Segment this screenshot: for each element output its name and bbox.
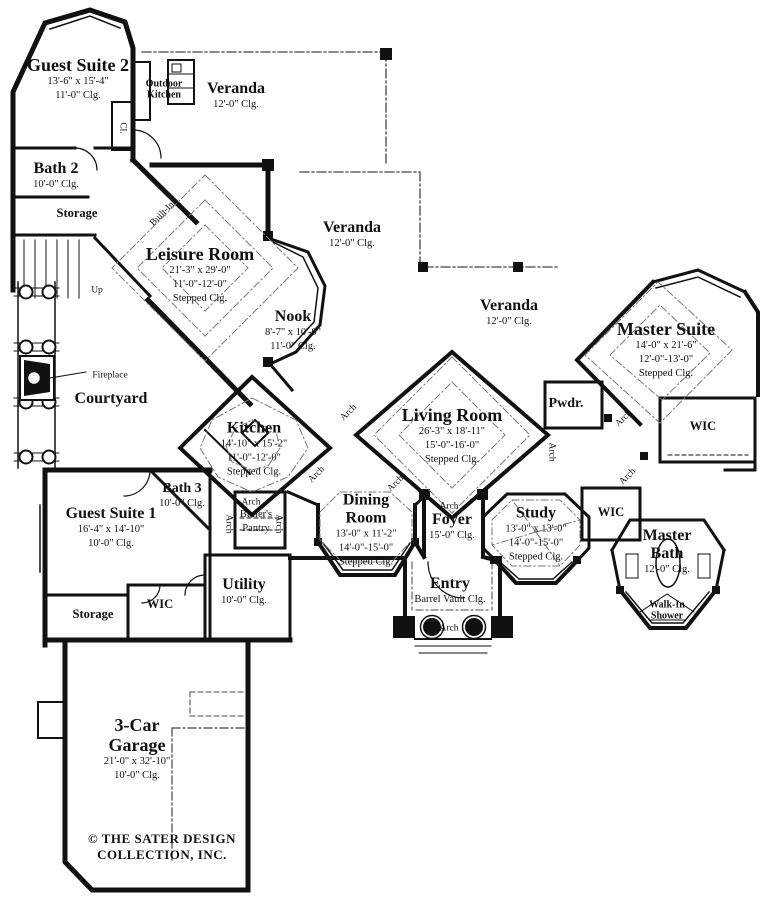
room-name: Veranda (207, 80, 265, 98)
room-label-utility: Utility 10'-0" Clg. (221, 576, 267, 608)
walk-in-shower-label: Walk-In Shower (649, 601, 685, 622)
room-name: Living Room (402, 405, 503, 425)
room-name: Entry (414, 575, 485, 593)
room-name: Kitchen (221, 419, 288, 437)
room-name: Courtyard (75, 390, 148, 408)
room-ceiling: 11'-0" Clg. (265, 340, 321, 354)
room-label-courtyard: Courtyard (75, 390, 148, 408)
room-dim: 13'-6" x 15'-4" (27, 75, 129, 89)
room-name: Room (336, 509, 397, 527)
wic-left-label: WIC (147, 597, 173, 611)
fireplace-label: Fireplace (92, 371, 127, 382)
room-ceiling: 12'-0" Clg. (323, 237, 381, 251)
arch-label-living-right: Arch (546, 443, 557, 462)
room-name: Veranda (480, 297, 538, 315)
room-ceiling: 12'-0"-13'-0" (617, 353, 715, 367)
room-ceiling: 10'-0" Clg. (104, 769, 171, 783)
room-label-dining-room: Dining Room 13'-0" x 11'-2" 14'-0"-15'-0… (336, 491, 397, 568)
room-ceiling: 12'-0" Clg. (207, 98, 265, 112)
room-ceiling: Stepped Clg. (221, 465, 288, 479)
arch-label-foyer-top: Arch (440, 502, 459, 513)
room-ceiling: Stepped Clg. (617, 367, 715, 381)
room-name: 3-Car (104, 715, 171, 735)
room-dim: 26'-3" x 18'-11" (402, 425, 503, 439)
room-dim: 14'-0" x 21'-6" (617, 339, 715, 353)
room-label-living-room: Living Room 26'-3" x 18'-11" 15'-0"-16'-… (402, 405, 503, 467)
room-name: Master (643, 527, 692, 545)
room-label-bath-2: Bath 2 10'-0" Clg. (33, 160, 79, 192)
room-label-master-suite: Master Suite 14'-0" x 21'-6" 12'-0"-13'-… (617, 319, 715, 381)
room-label-butlers-pantry: Butler's Pantry (240, 508, 272, 536)
room-label-kitchen: Kitchen 14'-10" x 15'-2" 11'-0"-12'-0" S… (221, 419, 288, 478)
room-dim: 13'-0" x 13'-0" (505, 522, 566, 536)
room-ceiling: Stepped Clg. (402, 453, 503, 467)
room-dim: 16'-4" x 14'-10" (66, 523, 157, 537)
room-label-leisure-room: Leisure Room 21'-3" x 29'-0" 11'-0"-12'-… (146, 244, 254, 306)
room-dim: 21'-0" x 32'-10" (104, 755, 171, 769)
room-label-bath-3: Bath 3 10'-0" Clg. (159, 481, 205, 511)
room-dim: 21'-3" x 29'-0" (146, 264, 254, 278)
stairs-up-label: Up (91, 286, 103, 297)
room-label-outdoor-kitchen: Outdoor Kitchen (146, 80, 183, 101)
room-ceiling: 14'-0"-15'-0" (505, 536, 566, 550)
room-name: Butler's (240, 508, 272, 522)
room-ceiling: 12'-0" Clg. (643, 563, 692, 577)
room-label-foyer: Foyer 15'-0" Clg. (429, 511, 475, 543)
room-name: Foyer (429, 511, 475, 529)
storage-upper-label: Storage (57, 206, 98, 220)
room-name: Bath 2 (33, 160, 79, 178)
room-label-veranda-top: Veranda 12'-0" Clg. (207, 80, 265, 112)
room-dim: 14'-10" x 15'-2" (221, 437, 288, 451)
arch-label-butlers-right: Arch (273, 515, 284, 534)
wic-center-label: WIC (598, 505, 624, 519)
room-label-garage: 3-Car Garage 21'-0" x 32'-10" 10'-0" Clg… (104, 715, 171, 783)
copyright-text: © THE SATER DESIGN COLLECTION, INC. (88, 831, 236, 864)
room-name: Guest Suite 1 (66, 505, 157, 523)
room-ceiling: 10'-0" Clg. (221, 594, 267, 608)
room-ceiling: 15'-0" Clg. (429, 529, 475, 543)
arch-label-butlers-left: Arch (223, 515, 234, 534)
room-label-guest-suite-1: Guest Suite 1 16'-4" x 14'-10" 10'-0" Cl… (66, 505, 157, 551)
room-label-pwdr: Pwdr. (549, 396, 584, 412)
room-ceiling: 11'-0"-12'-0" (146, 278, 254, 292)
room-name: Study (505, 504, 566, 522)
room-ceiling: 15'-0"-16'-0" (402, 439, 503, 453)
closet-label: Cl. (117, 122, 128, 133)
room-name: Bath 3 (159, 481, 205, 497)
room-ceiling: 10'-0" Clg. (66, 537, 157, 551)
room-name: Bath (643, 545, 692, 563)
room-name: Nook (265, 308, 321, 326)
room-name: Veranda (323, 219, 381, 237)
room-dim: 13'-0" x 11'-2" (336, 527, 397, 541)
room-label-veranda-right: Veranda 12'-0" Clg. (480, 297, 538, 329)
room-ceiling: Stepped Clg. (146, 292, 254, 306)
room-name: Pwdr. (549, 396, 584, 412)
room-ceiling: 10'-0" Clg. (159, 497, 205, 511)
room-label-entry: Entry Barrel Vault Clg. (414, 575, 485, 607)
room-name: Master Suite (617, 319, 715, 339)
room-ceiling: 12'-0" Clg. (480, 315, 538, 329)
room-name: Pantry (240, 522, 272, 536)
room-label-guest-suite-2: Guest Suite 2 13'-6" x 15'-4" 11'-0" Clg… (27, 55, 129, 103)
room-name: Garage (104, 735, 171, 755)
arch-label-butlers-top: Arch (242, 498, 261, 509)
room-dim: 8'-7" x 10'-0" (265, 326, 321, 340)
room-ceiling: 10'-0" Clg. (33, 178, 79, 192)
room-label-nook: Nook 8'-7" x 10'-0" 11'-0" Clg. (265, 308, 321, 354)
wic-master-label: WIC (690, 419, 716, 433)
room-name: Guest Suite 2 (27, 55, 129, 75)
room-ceiling: 11'-0" Clg. (27, 89, 129, 103)
storage-lower-label: Storage (73, 607, 114, 621)
room-label-veranda-mid: Veranda 12'-0" Clg. (323, 219, 381, 251)
room-label-study: Study 13'-0" x 13'-0" 14'-0"-15'-0" Step… (505, 504, 566, 563)
room-label-master-bath: Master Bath 12'-0" Clg. (643, 527, 692, 577)
arch-label-entry: Arch (440, 624, 459, 635)
room-name: Outdoor (146, 80, 183, 91)
room-name: Leisure Room (146, 244, 254, 264)
room-name: Dining (336, 491, 397, 509)
floor-plan: Guest Suite 2 13'-6" x 15'-4" 11'-0" Clg… (0, 0, 780, 906)
room-ceiling: Stepped Clg. (505, 550, 566, 564)
room-ceiling: Stepped Clg. (336, 555, 397, 569)
room-ceiling: 11'-0"-12'-0" (221, 451, 288, 465)
room-ceiling: 14'-0"-15'-0" (336, 541, 397, 555)
room-name: Kitchen (146, 90, 183, 101)
room-name: Utility (221, 576, 267, 594)
room-ceiling: Barrel Vault Clg. (414, 593, 485, 607)
